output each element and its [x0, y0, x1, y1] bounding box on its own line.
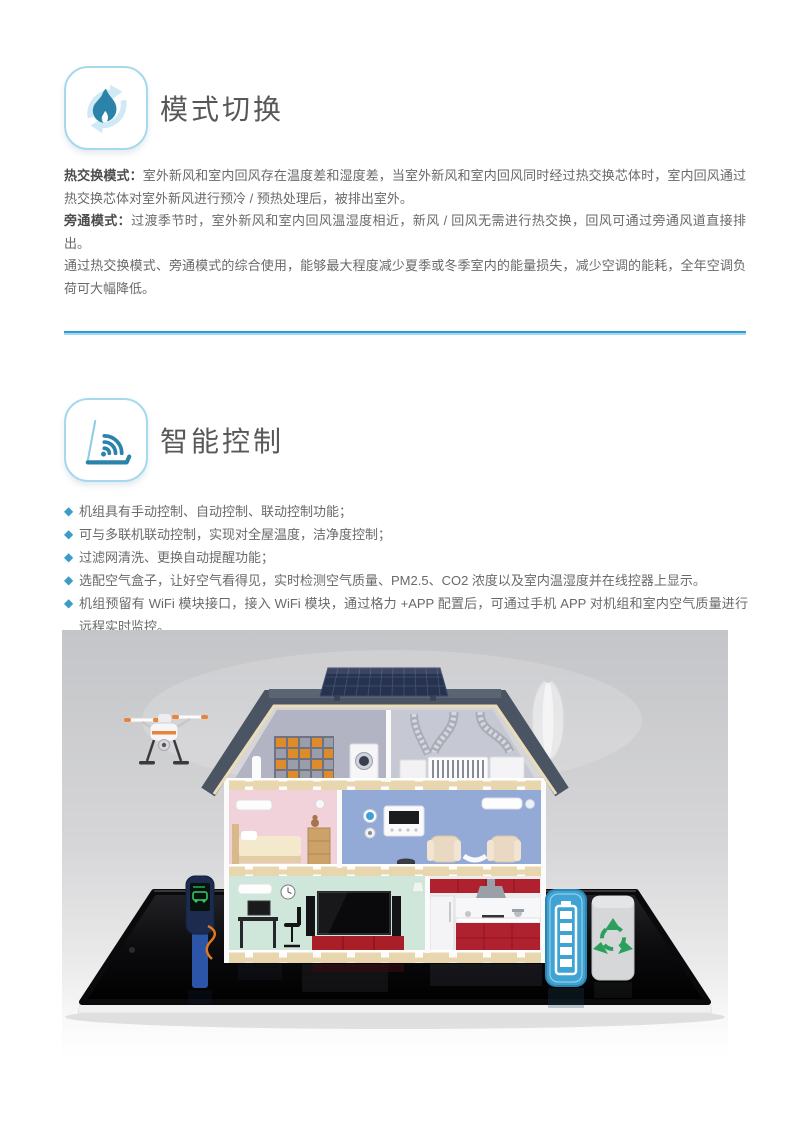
smart-home-cutaway-scene: [62, 630, 728, 1060]
feature-text: 过滤网清洗、更换自动提醒功能；: [79, 550, 274, 565]
laptop-wifi-icon: [77, 411, 135, 469]
paragraph-summary: 通过热交换模式、旁通模式的综合使用，能够最大程度减少夏季或冬季室内的能量损失，减…: [64, 255, 746, 300]
feature-item: ◆机组具有手动控制、自动控制、联动控制功能；: [64, 500, 748, 523]
diamond-bullet-icon: ◆: [64, 523, 73, 546]
kitchen-furniture: [430, 879, 540, 952]
home-battery: [546, 890, 586, 986]
solar-panel: [320, 668, 448, 701]
feature-item: ◆过滤网清洗、更换自动提醒功能；: [64, 546, 748, 569]
tablet-camera-dot: [129, 947, 135, 953]
paragraph-bypass: 旁通模式：过渡季节时，室外新风和室内回风温湿度相近，新风 / 回风无需进行热交换…: [64, 210, 746, 255]
mode-switch-paragraphs: 热交换模式：室外新风和室内回风存在温度差和湿度差，当室外新风和室内回风同时经过热…: [64, 165, 746, 300]
diamond-bullet-icon: ◆: [64, 500, 73, 523]
paragraph-label: 旁通模式：: [64, 213, 131, 228]
section-mode-switch-header: 模式切换: [64, 66, 284, 150]
section-title-mode-switch: 模式切换: [160, 88, 284, 128]
paragraph-text: 过渡季节时，室外新风和室内回风温湿度相近，新风 / 回风无需进行热交换，回风可通…: [64, 213, 746, 251]
range-hood: [476, 886, 506, 898]
section-divider-rule: [64, 331, 746, 335]
brochure-page: 模式切换 热交换模式：室外新风和室内回风存在温度差和湿度差，当室外新风和室内回风…: [0, 0, 790, 1121]
paragraph-text: 通过热交换模式、旁通模式的综合使用，能够最大程度减少夏季或冬季室内的能量损失，减…: [64, 258, 746, 296]
smart-home-illustration: [62, 630, 728, 1060]
house-cutaway: [208, 668, 562, 963]
section-title-smart-control: 智能控制: [160, 420, 284, 460]
feature-item: ◆选配空气盒子，让好空气看得见，实时检测空气质量、PM2.5、CO2 浓度以及室…: [64, 569, 748, 592]
diamond-bullet-icon: ◆: [64, 592, 73, 615]
feature-item: ◆可与多联机联动控制，实现对全屋温度，洁净度控制；: [64, 523, 748, 546]
diamond-bullet-icon: ◆: [64, 546, 73, 569]
flame-cycle-icon: [77, 79, 135, 137]
diamond-bullet-icon: ◆: [64, 569, 73, 592]
section-smart-control-header: 智能控制: [64, 398, 284, 482]
recycle-bin: [592, 896, 634, 980]
paragraph-text: 室外新风和室内回风存在温度差和湿度差，当室外新风和室内回风同时经过热交换芯体时，…: [64, 168, 746, 206]
smart-control-icon: [64, 398, 148, 482]
feature-text: 可与多联机联动控制，实现对全屋温度，洁净度控制；: [79, 527, 391, 542]
feature-text: 选配空气盒子，让好空气看得见，实时检测空气质量、PM2.5、CO2 浓度以及室内…: [79, 573, 706, 588]
feature-text: 机组预留有 WiFi 模块接口，接入 WiFi 模块，通过格力 +APP 配置后…: [79, 596, 748, 634]
mode-switch-icon: [64, 66, 148, 150]
feature-text: 机组具有手动控制、自动控制、联动控制功能；: [79, 504, 352, 519]
paragraph-label: 热交换模式：: [64, 168, 143, 183]
paragraph-heat-exchange: 热交换模式：室外新风和室内回风存在温度差和湿度差，当室外新风和室内回风同时经过热…: [64, 165, 746, 210]
smart-control-feature-list: ◆机组具有手动控制、自动控制、联动控制功能； ◆可与多联机联动控制，实现对全屋温…: [64, 500, 748, 638]
